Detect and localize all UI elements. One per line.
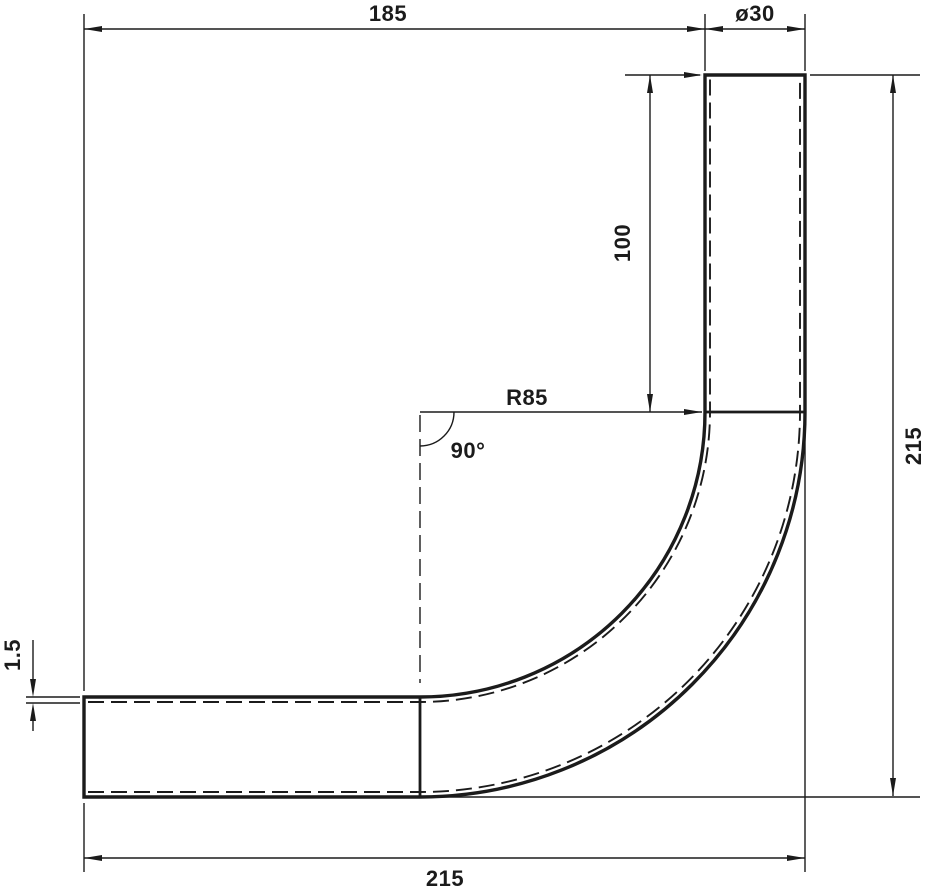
arrowhead-bend-radius xyxy=(684,409,702,415)
arrowhead-top-width-right xyxy=(687,26,705,32)
label-overall-width: 215 xyxy=(426,866,464,891)
arrowhead-leg-top xyxy=(647,75,653,93)
label-bend-angle: 90° xyxy=(451,438,486,463)
label-diameter: ø30 xyxy=(735,1,774,26)
bore-hidden-line-inner-side xyxy=(88,79,710,702)
label-top-width: 185 xyxy=(369,1,407,26)
arrowhead-top-width-left xyxy=(84,26,102,32)
angle-arc xyxy=(420,412,454,446)
label-overall-height: 215 xyxy=(901,427,926,465)
dimension-labels: 185 ø30 100 R85 90° 215 215 1.5 xyxy=(0,1,926,891)
technical-drawing-canvas: 185 ø30 100 R85 90° 215 215 1.5 xyxy=(0,0,931,894)
arrowhead-height-top xyxy=(890,75,896,93)
arrowhead-width-right xyxy=(787,855,805,861)
arrowhead-height-bottom xyxy=(890,778,896,796)
pipe-bend-drawing: 185 ø30 100 R85 90° 215 215 1.5 xyxy=(0,0,931,894)
arrowhead-width-left xyxy=(84,855,102,861)
arrowhead-diameter-left xyxy=(705,26,723,32)
label-bend-radius: R85 xyxy=(506,385,548,410)
arrowhead-leg-reference xyxy=(684,72,702,78)
label-wall-thickness: 1.5 xyxy=(0,639,25,671)
label-leg-length: 100 xyxy=(610,224,635,262)
arrowhead-leg-bottom xyxy=(647,394,653,412)
arrowhead-wall-lower xyxy=(30,703,36,721)
arrowhead-diameter-right xyxy=(787,26,805,32)
arrowhead-wall-upper xyxy=(30,679,36,697)
